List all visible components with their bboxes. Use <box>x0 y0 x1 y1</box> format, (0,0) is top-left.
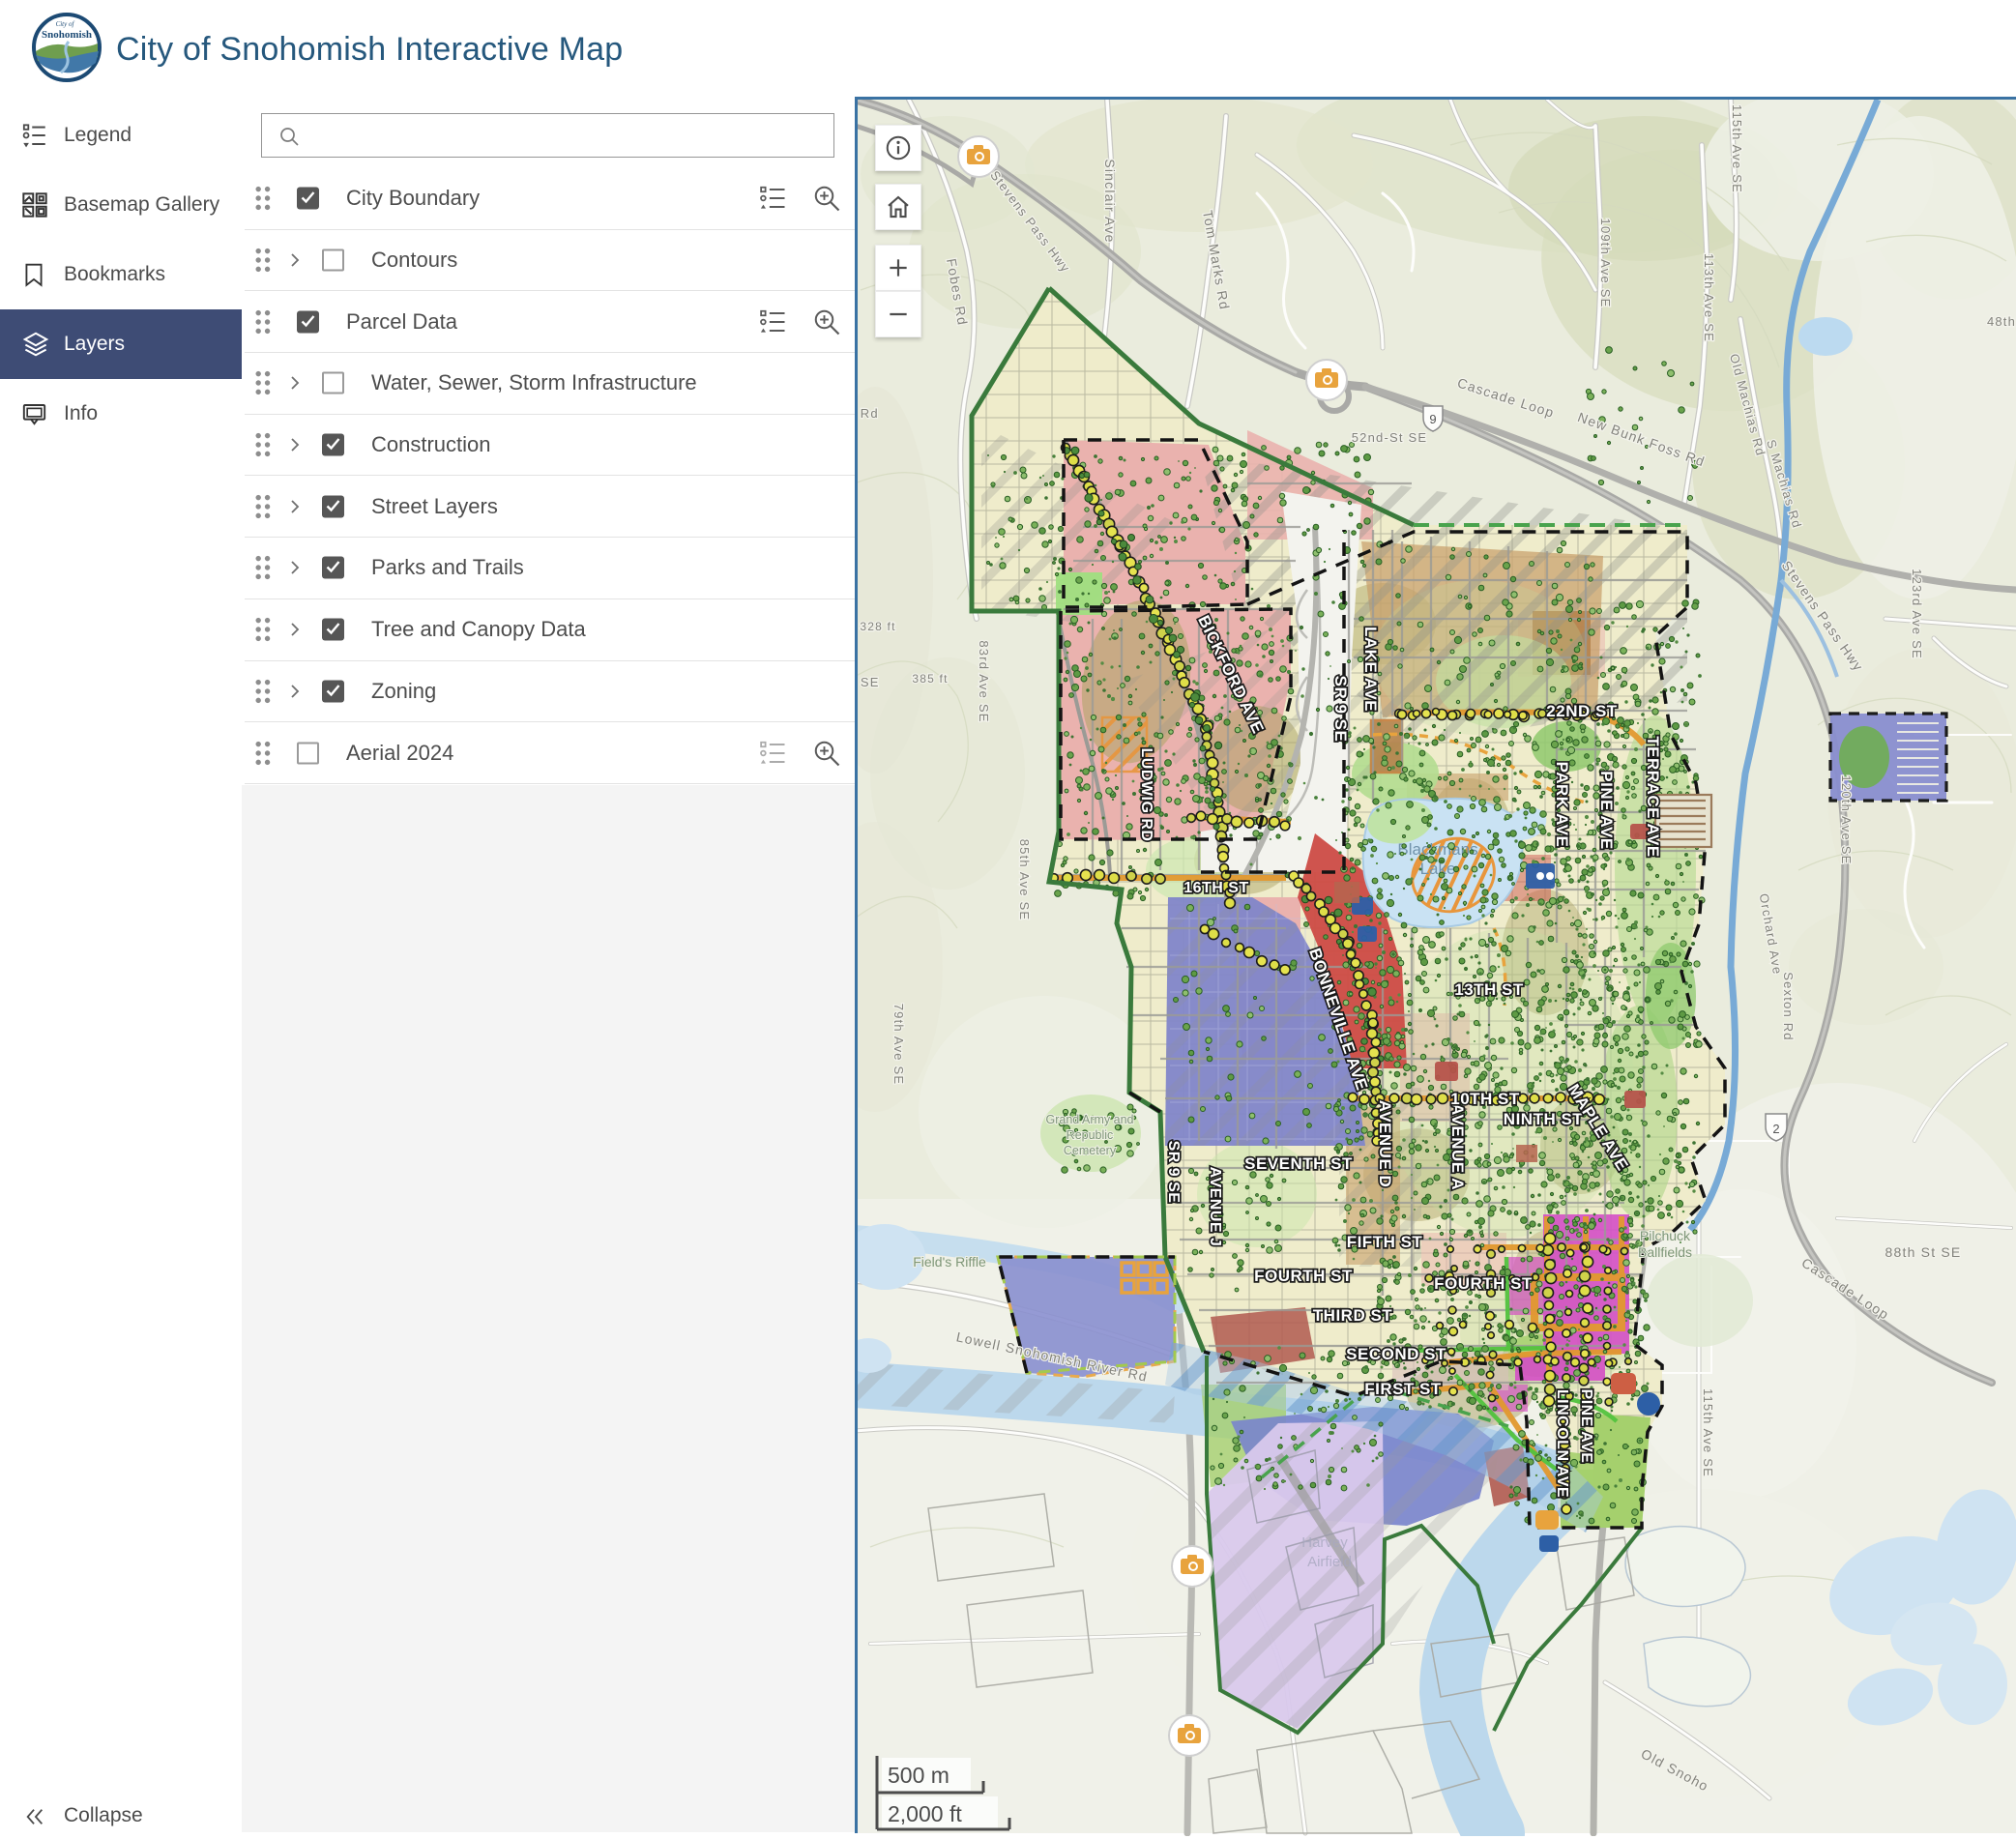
svg-text:Republic: Republic <box>1066 1128 1114 1142</box>
svg-text:Grand Army and: Grand Army and <box>1045 1113 1133 1126</box>
svg-text:SEVENTH ST: SEVENTH ST <box>1244 1154 1353 1173</box>
svg-text:Sexton Rd: Sexton Rd <box>1781 972 1796 1041</box>
svg-text:9: 9 <box>1429 412 1436 426</box>
svg-text:Cemetery: Cemetery <box>1064 1144 1117 1157</box>
svg-text:500 m: 500 m <box>888 1763 950 1788</box>
svg-text:Sinclair Ave: Sinclair Ave <box>1102 159 1118 243</box>
svg-text:13TH ST: 13TH ST <box>1454 980 1524 999</box>
svg-text:Harvey: Harvey <box>1301 1534 1348 1551</box>
svg-text:AVENUE J: AVENUE J <box>1207 1167 1223 1247</box>
svg-text:SR 9 SE: SR 9 SE <box>1331 676 1350 743</box>
svg-text:LINCOLN AVE: LINCOLN AVE <box>1554 1389 1570 1498</box>
svg-text:115th Ave SE: 115th Ave SE <box>1730 104 1744 193</box>
svg-text:Snohomish: Snohomish <box>42 29 92 41</box>
svg-text:2,000 ft: 2,000 ft <box>888 1801 962 1826</box>
svg-text:113th Ave SE: 113th Ave SE <box>1702 253 1716 342</box>
svg-text:FOURTH ST: FOURTH ST <box>1434 1274 1533 1293</box>
svg-text:328 ft: 328 ft <box>860 620 895 633</box>
svg-text:FIFTH ST: FIFTH ST <box>1347 1233 1423 1251</box>
svg-text:Ballfields: Ballfields <box>1638 1244 1692 1260</box>
svg-text:PINE AVE: PINE AVE <box>1597 771 1616 849</box>
svg-text:22ND ST: 22ND ST <box>1546 702 1618 720</box>
svg-text:LAKE AVE: LAKE AVE <box>1361 627 1380 712</box>
svg-text:123rd Ave SE: 123rd Ave SE <box>1910 569 1924 659</box>
svg-text:115th Ave SE: 115th Ave SE <box>1701 1388 1715 1477</box>
svg-text:City of: City of <box>56 20 75 28</box>
svg-text:85th Ave SE: 85th Ave SE <box>1017 839 1032 921</box>
svg-text:FIRST ST: FIRST ST <box>1364 1380 1442 1398</box>
svg-text:PINE AVE: PINE AVE <box>1578 1389 1594 1464</box>
svg-text:79th Ave SE: 79th Ave SE <box>891 1004 906 1086</box>
svg-text:385 ft: 385 ft <box>912 672 948 686</box>
svg-text:120th Ave SE: 120th Ave SE <box>1839 775 1854 865</box>
svg-text:SR 9 SE: SR 9 SE <box>1165 1141 1182 1204</box>
svg-text:FOURTH ST: FOURTH ST <box>1254 1267 1353 1285</box>
svg-text:LUDWIG RD: LUDWIG RD <box>1138 748 1154 842</box>
svg-text:AVENUE D: AVENUE D <box>1376 1100 1394 1188</box>
svg-text:Pilchuck: Pilchuck <box>1640 1228 1691 1243</box>
svg-text:Lake: Lake <box>1420 860 1456 878</box>
svg-text:Field's Riffle: Field's Riffle <box>913 1254 986 1270</box>
svg-text:88th St SE: 88th St SE <box>1885 1244 1962 1260</box>
svg-text:St SE: St SE <box>855 675 880 689</box>
svg-text:TERRACE AVE: TERRACE AVE <box>1644 736 1662 857</box>
svg-text:83rd Ave SE: 83rd Ave SE <box>977 640 991 722</box>
svg-text:Airfield: Airfield <box>1307 1554 1352 1570</box>
svg-text:PARK AVE: PARK AVE <box>1553 762 1571 848</box>
svg-text:THIRD ST: THIRD ST <box>1313 1306 1393 1325</box>
svg-text:52nd-St SE: 52nd-St SE <box>1352 430 1428 445</box>
svg-text:AVENUE A: AVENUE A <box>1448 1103 1467 1190</box>
svg-text:10TH ST: 10TH ST <box>1450 1090 1520 1108</box>
svg-text:y Rd: y Rd <box>855 406 879 421</box>
svg-text:109th Ave SE: 109th Ave SE <box>1598 219 1613 308</box>
svg-text:NINTH ST: NINTH ST <box>1504 1110 1584 1128</box>
svg-text:16TH ST: 16TH ST <box>1183 880 1249 896</box>
svg-text:2: 2 <box>1772 1122 1779 1136</box>
svg-text:SECOND ST: SECOND ST <box>1346 1345 1446 1363</box>
svg-text:48th: 48th <box>1987 314 2016 329</box>
